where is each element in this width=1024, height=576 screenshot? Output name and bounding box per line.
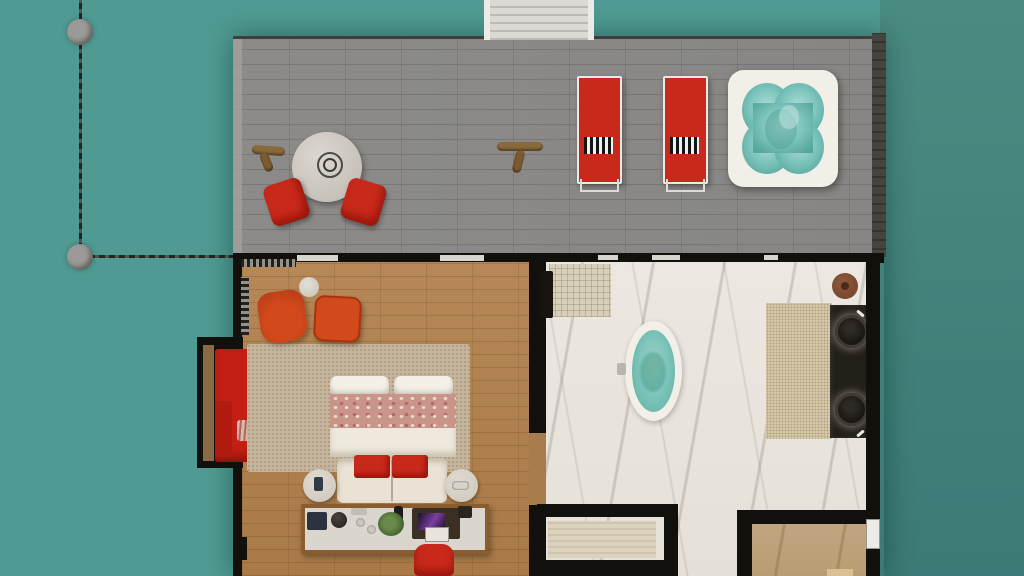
bed-pillow bbox=[330, 376, 389, 396]
bath-rug bbox=[766, 303, 832, 439]
shower-mat bbox=[549, 264, 611, 317]
bench-enclosure-wall bbox=[537, 504, 678, 517]
interior-doorway bbox=[529, 433, 546, 505]
mini-fridge bbox=[425, 527, 449, 542]
tub-faucet bbox=[617, 363, 626, 375]
side-room-wall bbox=[737, 510, 752, 576]
sliding-door-gap bbox=[440, 255, 484, 261]
kettle bbox=[331, 512, 347, 528]
tray bbox=[351, 508, 367, 515]
pier-railing-horizontal bbox=[79, 255, 237, 258]
hot-tub bbox=[728, 70, 838, 187]
bathtub-water-swirl bbox=[640, 352, 666, 392]
lounger-frame bbox=[666, 179, 705, 192]
vessel-sink bbox=[835, 315, 868, 348]
window-gap bbox=[598, 255, 618, 260]
side-table bbox=[299, 277, 319, 297]
bench-enclosure-wall bbox=[664, 504, 678, 562]
stool-center bbox=[841, 282, 849, 290]
storage-bench bbox=[548, 521, 656, 558]
coffee-machine bbox=[307, 512, 327, 530]
bed-floral-runner bbox=[330, 394, 456, 428]
sun-lounger bbox=[577, 76, 622, 184]
towel-rack bbox=[540, 271, 553, 318]
phone bbox=[314, 477, 323, 491]
bench-enclosure-wall bbox=[537, 560, 678, 576]
window-gap bbox=[764, 255, 778, 260]
wall-stub bbox=[236, 537, 247, 560]
ottoman bbox=[313, 295, 362, 343]
hot-tub-water bbox=[735, 77, 831, 180]
entry-staircase bbox=[484, 0, 594, 40]
desk-chair bbox=[414, 544, 454, 576]
sun-lounger bbox=[663, 76, 708, 184]
bed-duvet bbox=[330, 428, 456, 457]
floor-plan-render bbox=[0, 0, 1024, 576]
mooring-pile bbox=[67, 244, 93, 270]
window-gap bbox=[652, 255, 680, 260]
cup bbox=[356, 518, 365, 527]
deck-trim bbox=[872, 33, 886, 257]
sliding-door-gap bbox=[297, 255, 338, 261]
side-room-wall bbox=[737, 510, 868, 524]
table-decor-ring-inner bbox=[323, 158, 337, 172]
chaise-armrest bbox=[215, 401, 232, 457]
plant bbox=[378, 512, 404, 536]
striped-towel bbox=[670, 137, 699, 154]
blind-hatch-horizontal bbox=[241, 259, 296, 267]
lounger-frame bbox=[580, 179, 619, 192]
exterior-door bbox=[866, 519, 880, 549]
water-right bbox=[880, 0, 1024, 576]
bed-pillow bbox=[394, 376, 453, 396]
red-cushion bbox=[392, 455, 428, 478]
vessel-sink bbox=[835, 393, 868, 426]
alcove-wood-ledge bbox=[203, 345, 214, 461]
cup bbox=[367, 525, 376, 534]
deck-edge-board bbox=[233, 39, 242, 257]
mooring-pile bbox=[67, 19, 93, 45]
desk-box bbox=[458, 506, 472, 518]
blind-hatch-vertical bbox=[241, 277, 249, 335]
side-room-item bbox=[827, 569, 853, 576]
striped-towel bbox=[584, 137, 613, 154]
armchair bbox=[256, 288, 310, 345]
red-cushion bbox=[354, 455, 390, 478]
game-controller bbox=[452, 481, 469, 490]
